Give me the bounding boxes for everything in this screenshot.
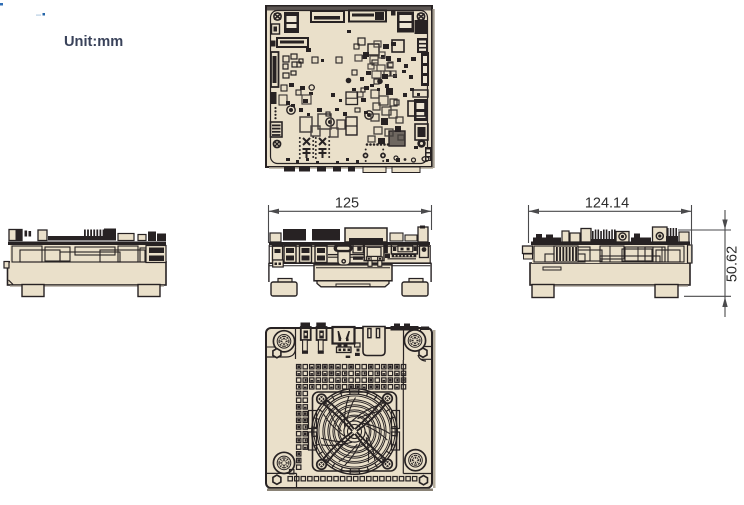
svg-text:124.14: 124.14	[585, 196, 629, 212]
svg-text:125: 125	[335, 196, 359, 212]
svg-text:50.62: 50.62	[725, 246, 741, 282]
svg-text:Unit:mm: Unit:mm	[64, 34, 123, 50]
